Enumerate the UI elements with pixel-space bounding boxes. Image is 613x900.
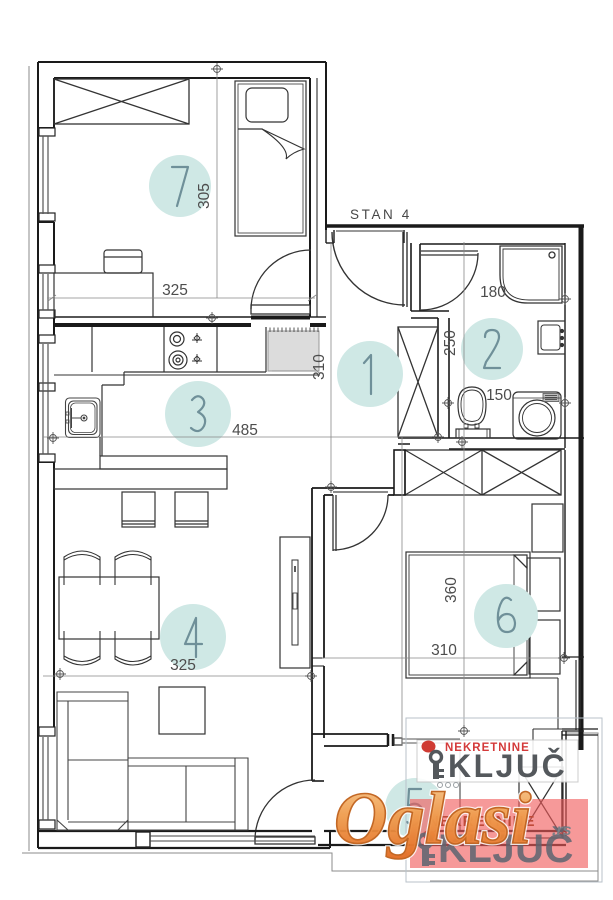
svg-text:305: 305 <box>196 183 213 209</box>
svg-text:180: 180 <box>480 284 506 301</box>
svg-text:325: 325 <box>162 282 188 299</box>
svg-text:485: 485 <box>232 422 258 439</box>
svg-text:150: 150 <box>486 387 512 404</box>
svg-text:310: 310 <box>311 354 328 380</box>
svg-text:360: 360 <box>443 577 460 603</box>
svg-text:250: 250 <box>442 330 459 356</box>
svg-text:310: 310 <box>431 642 457 659</box>
svg-text:.rs: .rs <box>552 822 572 839</box>
svg-text:STAN 4: STAN 4 <box>350 207 412 222</box>
svg-text:Oglasi: Oglasi <box>334 778 532 860</box>
svg-text:325: 325 <box>170 657 196 674</box>
